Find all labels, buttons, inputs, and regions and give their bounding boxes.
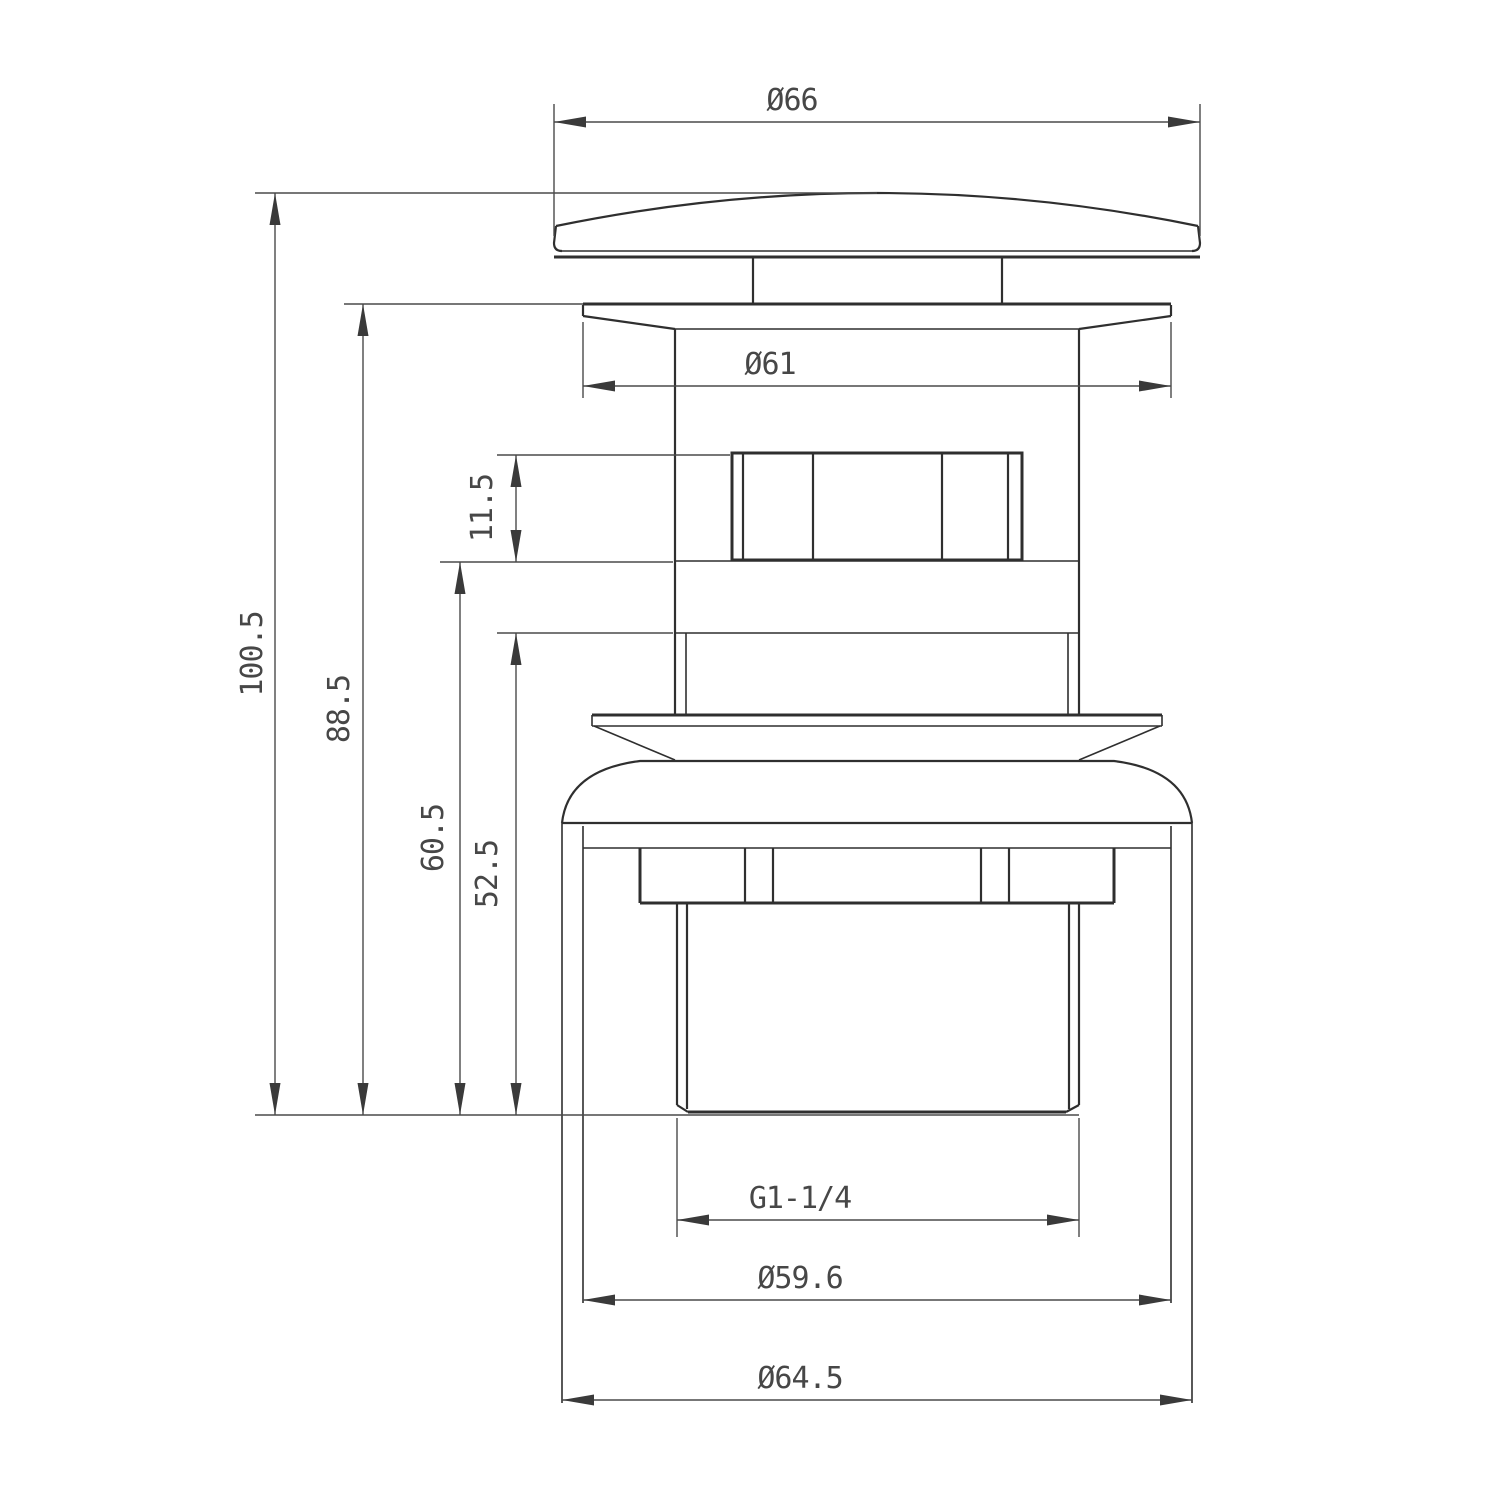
seal-washer <box>592 715 1162 760</box>
popup-waste-technical-drawing: Ø66 Ø61 100.5 88.5 11.5 6 <box>0 0 1500 1500</box>
cap-stem <box>753 258 1002 303</box>
dim-hex-collar-height: 11.5 <box>440 455 730 562</box>
drawing-canvas: Ø66 Ø61 100.5 88.5 11.5 6 <box>0 0 1500 1500</box>
dim-lower-body-height: 60.5 <box>416 562 466 1115</box>
dim-height-below-cap: 88.5 <box>322 304 583 1115</box>
dim-body-outer-diameter: Ø64.5 <box>562 1361 1192 1406</box>
upper-hex-nut <box>732 453 1022 560</box>
label-overall-height: 100.5 <box>235 611 270 696</box>
dim-cap-diameter: Ø66 <box>554 83 1200 236</box>
label-tail-section-height: 52.5 <box>470 840 505 908</box>
dim-flange-diameter: Ø61 <box>583 322 1171 398</box>
label-body-outer-diameter: Ø64.5 <box>757 1361 842 1396</box>
label-body-inner-diameter: Ø59.6 <box>757 1261 842 1296</box>
label-flange-diameter: Ø61 <box>744 347 795 382</box>
label-height-below-cap: 88.5 <box>322 675 357 743</box>
dim-thread-size: G1-1/4 <box>677 1118 1079 1237</box>
lower-hex-nut <box>640 848 1114 903</box>
label-hex-collar-height: 11.5 <box>465 474 500 542</box>
dim-tail-section-height: 52.5 <box>470 633 673 1115</box>
threaded-tail <box>677 903 1079 1112</box>
top-flange <box>583 304 1171 329</box>
label-thread-size: G1-1/4 <box>749 1181 851 1216</box>
dome-housing <box>562 761 1192 823</box>
dim-overall-height: 100.5 <box>235 193 877 1115</box>
upper-body <box>675 329 1079 715</box>
label-cap-diameter: Ø66 <box>766 83 817 118</box>
plug-cap <box>554 193 1200 257</box>
label-lower-body-height: 60.5 <box>416 804 451 872</box>
dim-body-inner-diameter: Ø59.6 <box>583 1261 1171 1306</box>
